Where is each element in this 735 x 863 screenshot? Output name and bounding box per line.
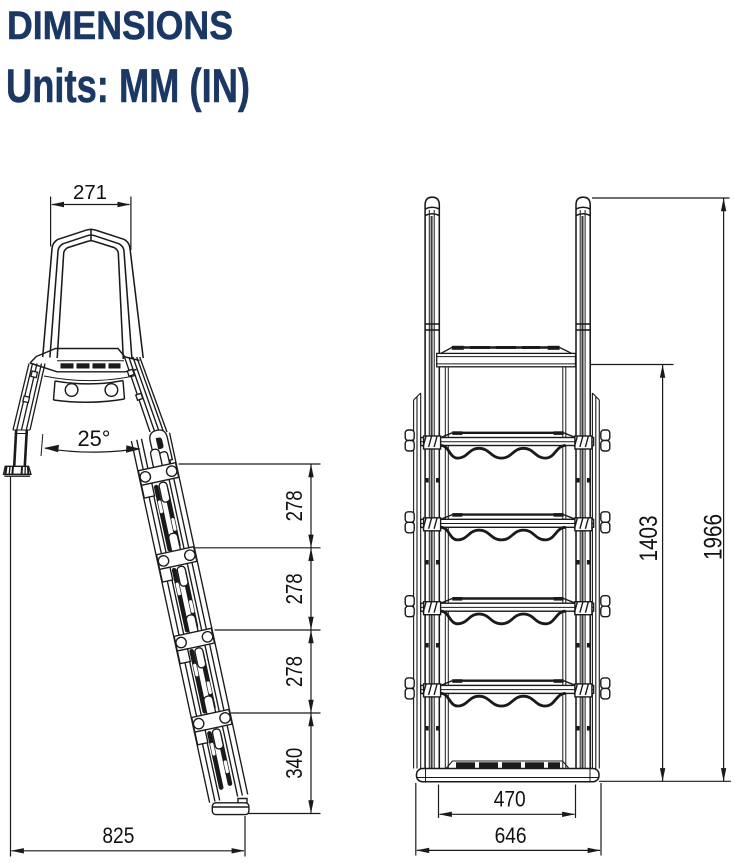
svg-text:25°: 25°: [78, 426, 111, 451]
svg-text:1403: 1403: [635, 516, 663, 562]
svg-text:Units: MM (IN): Units: MM (IN): [6, 59, 250, 112]
svg-text:DIMENSIONS: DIMENSIONS: [7, 4, 233, 48]
svg-text:278: 278: [281, 656, 307, 687]
svg-text:1966: 1966: [700, 514, 728, 560]
svg-text:470: 470: [494, 786, 526, 811]
svg-text:278: 278: [281, 490, 307, 521]
svg-text:825: 825: [102, 823, 134, 848]
svg-text:278: 278: [281, 573, 307, 604]
svg-text:271: 271: [73, 182, 107, 204]
svg-text:340: 340: [281, 748, 307, 779]
svg-text:646: 646: [495, 823, 527, 848]
